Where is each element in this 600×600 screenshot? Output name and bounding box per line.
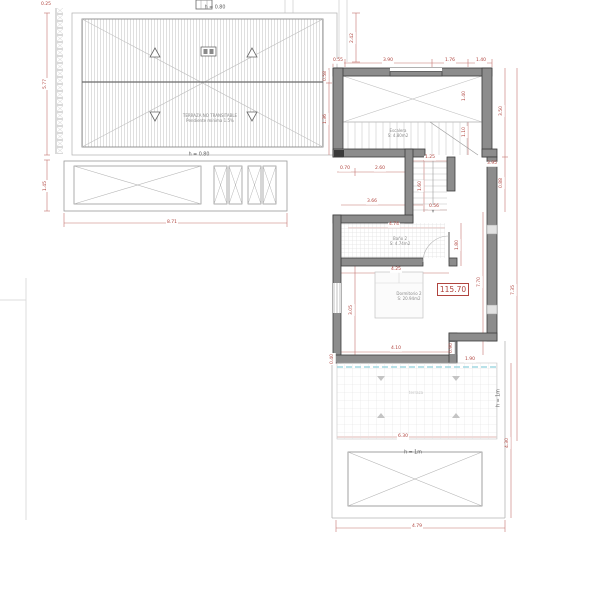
crossed-rectangle	[348, 452, 482, 506]
floorplan-drawing	[0, 0, 600, 600]
hedge-strip	[55, 8, 63, 154]
louver-panels	[214, 166, 276, 204]
roof-drain-box	[201, 47, 216, 56]
drain-box	[334, 150, 344, 157]
roof-vent-symbol	[196, 0, 212, 9]
stair-block	[333, 68, 497, 157]
planter-strip	[64, 161, 287, 211]
roof-plan	[72, 13, 337, 155]
bathroom	[333, 215, 457, 266]
stair-corridor	[405, 149, 455, 223]
lower-terrace	[332, 341, 505, 518]
stair-treads-lower	[413, 162, 447, 210]
floorplan-canvas: 115.70 0.255.771.458.712.420.553.901.761…	[0, 0, 600, 600]
right-exterior-wall	[487, 157, 497, 341]
window-symbol	[333, 283, 341, 313]
stair-direction-arrow	[430, 206, 436, 213]
level-elevation-badge: 115.70	[437, 283, 469, 296]
property-boundary-lines	[0, 278, 26, 520]
